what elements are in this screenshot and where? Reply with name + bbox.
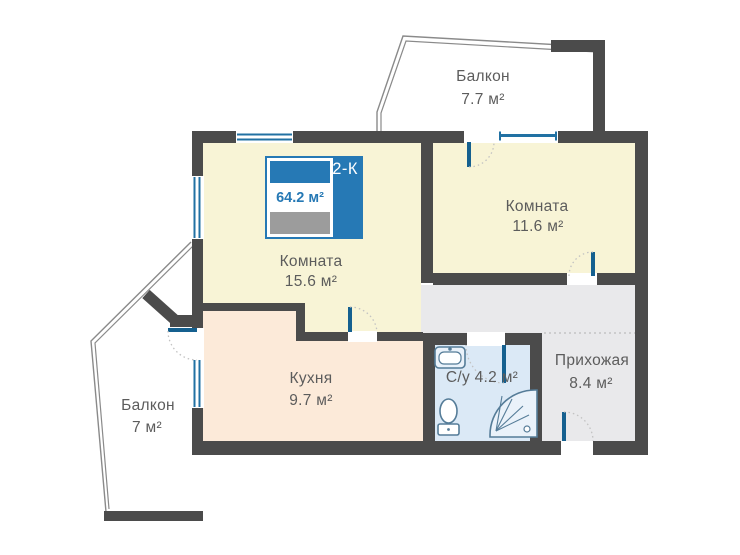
opening-door-room-left (348, 331, 377, 342)
apartment-badge: 64.2 м² 2-К (265, 156, 363, 239)
badge-apartment-type: 2-К (332, 160, 358, 179)
opening-window-room-left-side (191, 176, 204, 239)
badge-bar-bottom (270, 212, 330, 234)
room-right-name: Комната (506, 198, 569, 216)
balcony-top-area: 7.7 м² (461, 91, 504, 109)
room-left-name: Комната (280, 253, 343, 271)
sink-icon (435, 347, 465, 368)
opening-door-bathroom (467, 332, 505, 346)
toilet-icon (438, 399, 459, 435)
wall-balcony-left-bottom (104, 511, 203, 521)
wall-kitchen-top (203, 303, 302, 311)
floor-plan-drawing (0, 0, 740, 555)
bathroom-label: С/у 4.2 м² (446, 369, 518, 387)
room-right-area: 11.6 м² (512, 218, 563, 236)
opening-balcony-door-kitchen (191, 328, 204, 359)
floor-plan-page: 64.2 м² 2-К Балкон 7.7 м² Комната 11.6 м… (0, 0, 740, 555)
balcony-left-zone (91, 242, 203, 512)
wall-room-right-bottom (433, 273, 635, 285)
wall-bathroom-left (423, 333, 435, 445)
kitchen-name: Кухня (290, 370, 333, 388)
opening-balcony-door-room-right (464, 131, 497, 143)
opening-window-kitchen (191, 359, 204, 408)
hallway-name: Прихожая (555, 352, 629, 370)
bathroom-area: 4.2 м² (475, 369, 518, 386)
wall-balcony-top-right (593, 40, 605, 135)
badge-total-area: 64.2 м² (267, 183, 333, 212)
opening-entrance-door (561, 441, 593, 455)
balcony-left-area: 7 м² (132, 419, 162, 437)
balcony-top-name: Балкон (456, 68, 510, 86)
bathroom-name: С/у (446, 369, 470, 386)
badge-bar-top (270, 161, 330, 183)
wall-right (635, 131, 648, 455)
badge-panel: 64.2 м² (267, 158, 333, 237)
room-left-area: 15.6 м² (285, 273, 337, 291)
wall-rooms-divider (421, 142, 433, 283)
balcony-left-name: Балкон (121, 397, 175, 415)
hallway-area: 8.4 м² (569, 375, 612, 393)
kitchen-area: 9.7 м² (289, 392, 332, 410)
opening-window-room-left-top (236, 131, 293, 143)
